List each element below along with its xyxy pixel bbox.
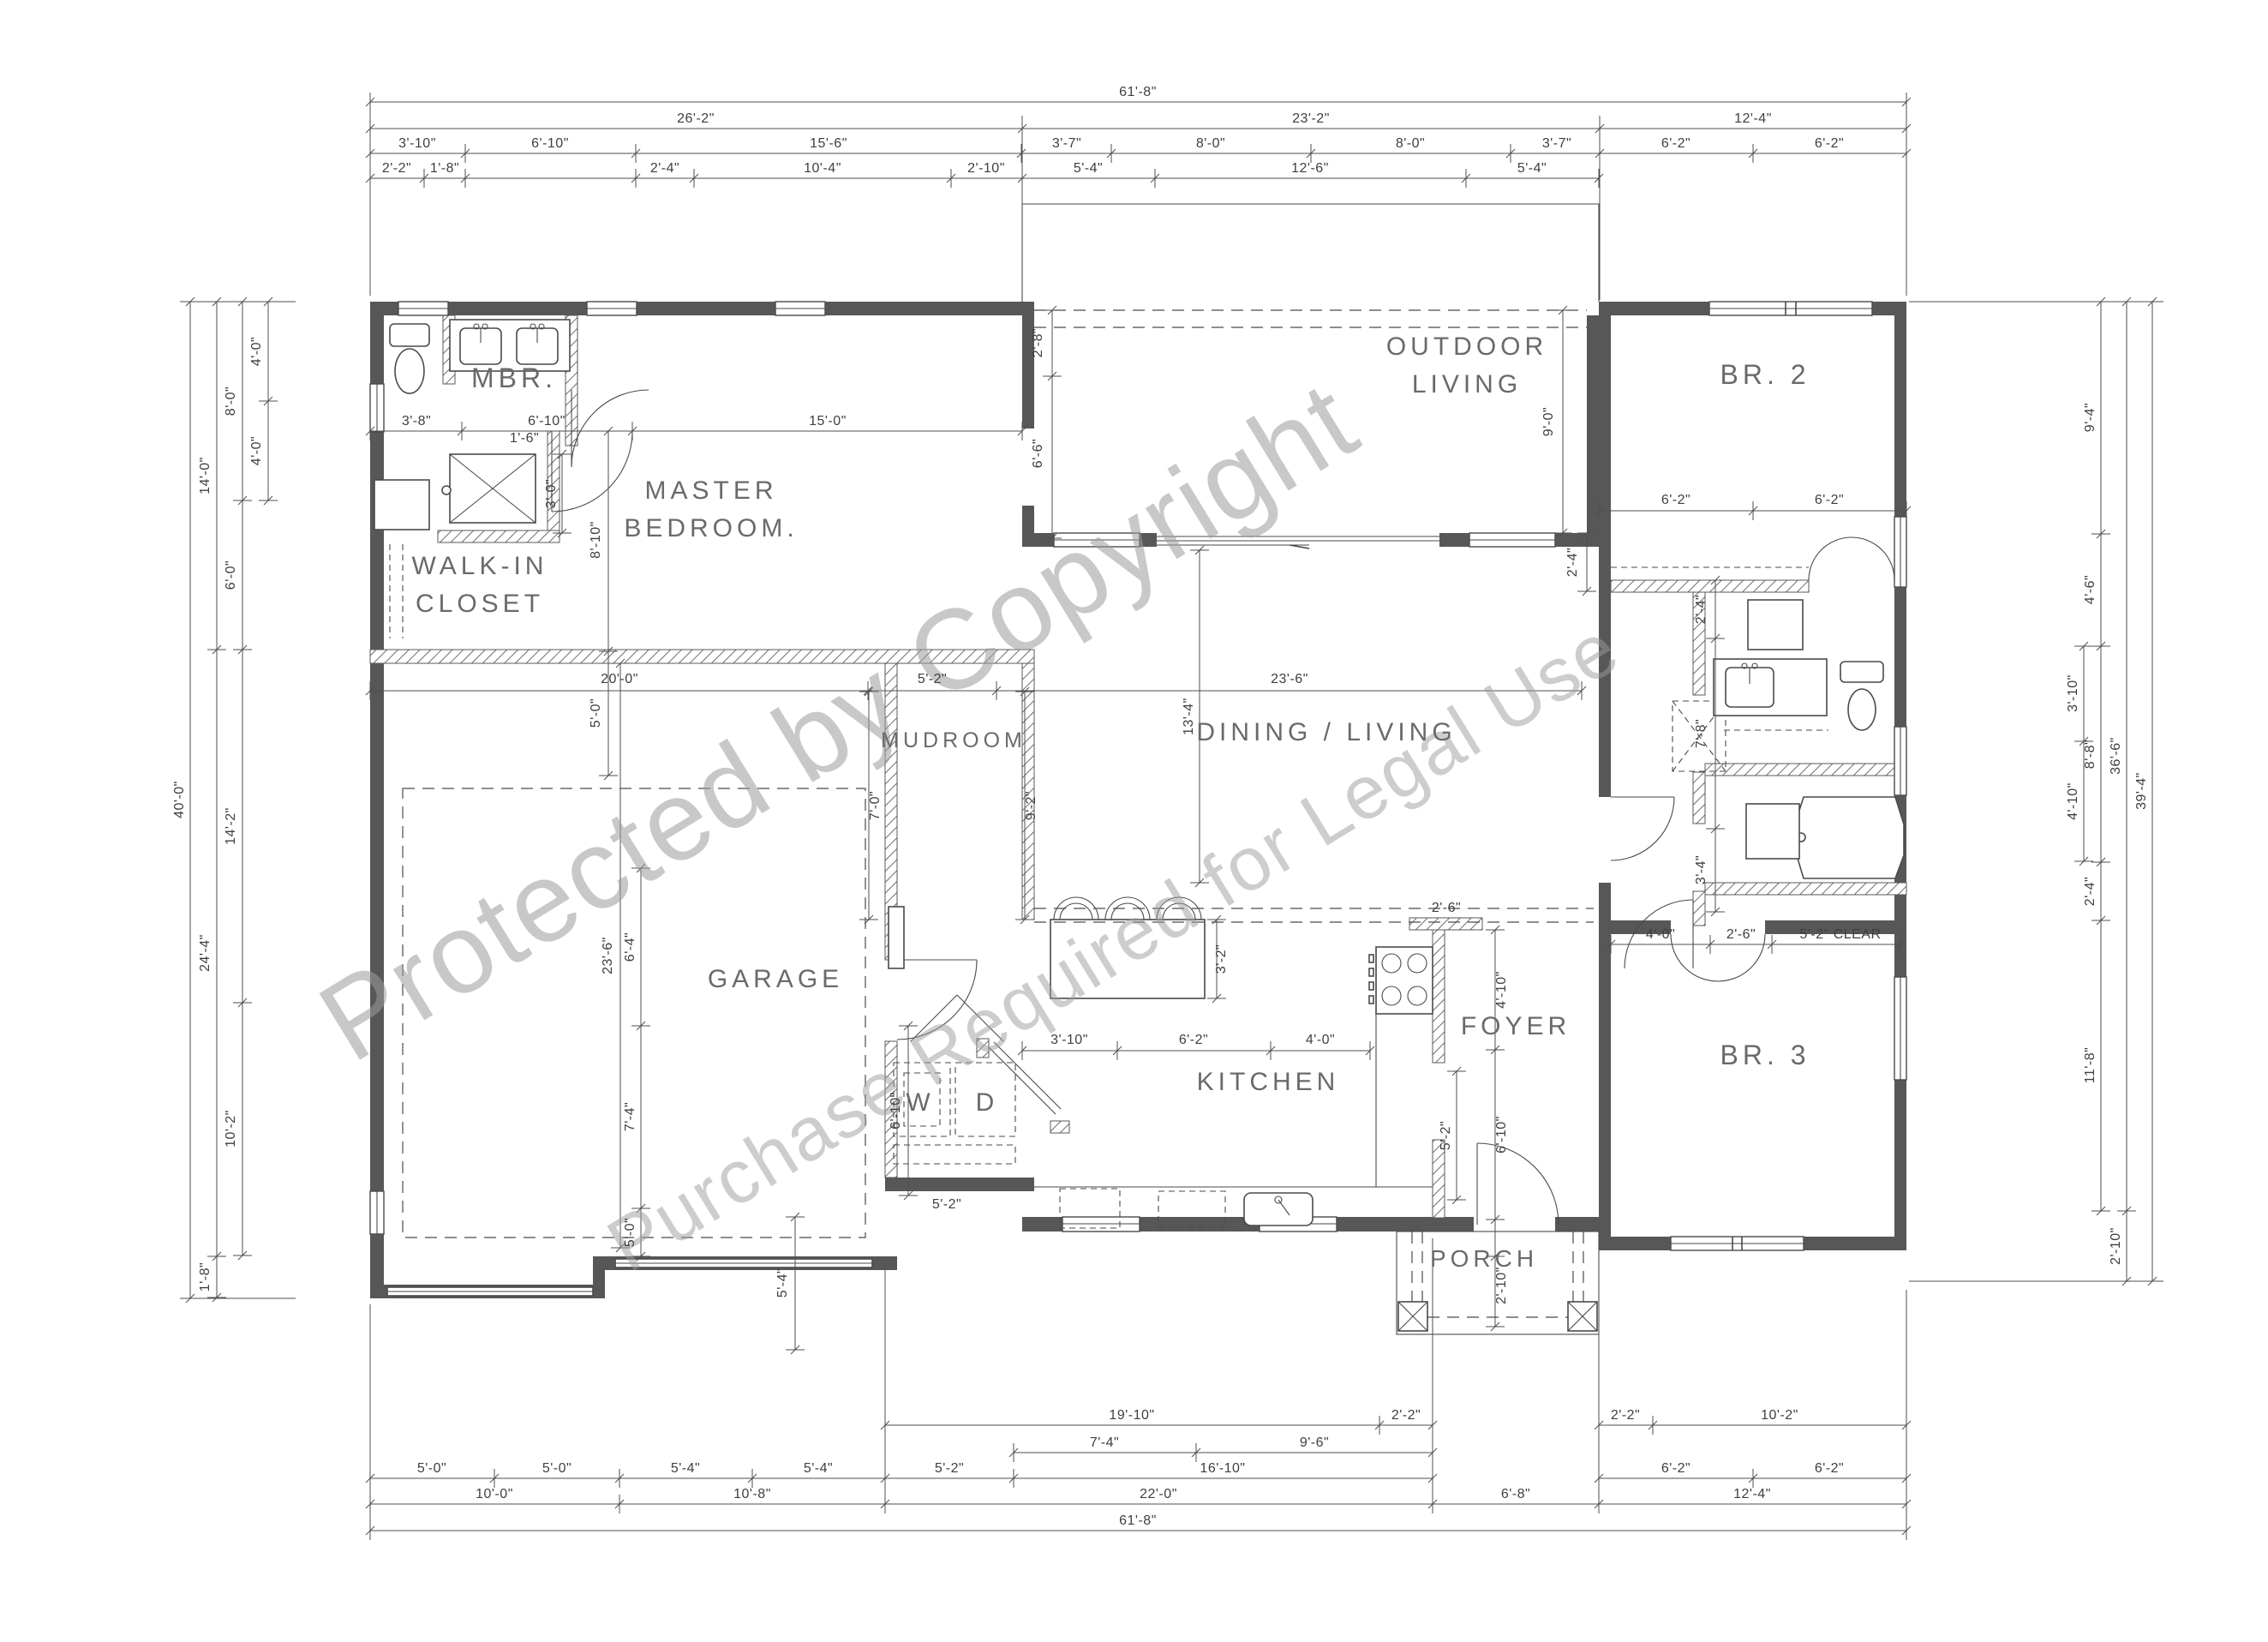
window: [1671, 1237, 1804, 1250]
cabinet: [374, 480, 429, 530]
dimension-label: 6'-2": [1661, 1461, 1691, 1476]
dimension-label: 6'-2": [1815, 1461, 1844, 1476]
room-label: BR. 3: [1720, 1040, 1810, 1070]
dimension-label: 15'-0": [809, 414, 847, 428]
vanity: [1714, 659, 1827, 716]
dimension-label: 2'-2": [1391, 1408, 1421, 1423]
room-label: DINING / LIVING: [1196, 718, 1456, 746]
dimension-label: 2'-2": [382, 161, 411, 176]
window: [398, 302, 448, 315]
dimension-label: 14'-0": [198, 457, 212, 494]
dimension-label: 6'-10": [531, 136, 569, 151]
toilet: [1840, 662, 1883, 730]
porch-column: [1568, 1302, 1597, 1331]
dimension-label: 61'-8": [1119, 1513, 1157, 1528]
window: [587, 302, 637, 315]
dimension-label: 2'-6": [1726, 927, 1756, 942]
dimension-label: 6'-4": [623, 932, 637, 962]
dimension-label: 6'-2": [1815, 493, 1844, 507]
room-label: PORCH: [1430, 1245, 1538, 1272]
dimension-label: 26'-2": [677, 111, 715, 126]
dimension-label: 4'-6": [2083, 575, 2097, 604]
window: [1062, 1217, 1140, 1231]
dimension-label: 6'-2": [1661, 136, 1691, 151]
dimension-label: 1'-8": [430, 161, 459, 176]
window: [1894, 727, 1906, 795]
dimension-label: 5'-0": [623, 1218, 637, 1247]
dimension-label: 2'-8": [1031, 328, 1045, 357]
dimension-label: 9'-6": [1300, 1435, 1329, 1450]
dimension-label: 6'-10": [889, 1092, 903, 1130]
dimension-label: 2'-10": [2109, 1227, 2123, 1265]
dimension-label: 5'-2": [1439, 1121, 1453, 1150]
dimension-label: 10'-2": [224, 1110, 238, 1148]
dimension-label: 2'-10": [1494, 1267, 1509, 1304]
dimension-label: 5'-4": [1517, 161, 1547, 176]
room-label: BEDROOM.: [624, 514, 798, 542]
dimension-label: 6'-2": [1661, 493, 1691, 507]
room-label: MASTER: [644, 476, 777, 505]
dimension-label: 12'-4": [1734, 111, 1772, 126]
dimension-label: 2'-10": [967, 161, 1005, 176]
dimension-label: 4'-0": [249, 337, 264, 366]
room-label: D: [976, 1088, 999, 1117]
dimension-label: 8'-0": [1396, 136, 1425, 151]
dimension-label: 3'-10": [398, 136, 436, 151]
window: [1894, 977, 1906, 1080]
room-label: CLOSET: [416, 590, 544, 618]
dimension-label: 7'-4": [623, 1102, 637, 1131]
dimension-label: 39'-4": [2134, 772, 2149, 810]
dimension-label: 5'-2": [932, 1197, 961, 1212]
dimension-label: 12'-4": [1733, 1487, 1771, 1501]
dimension-label: 3'-2": [1214, 944, 1229, 974]
dimension-label: 3'-7": [1052, 136, 1081, 151]
dimension-label: 8'-0": [224, 387, 238, 416]
dimension-label: 5'-4": [775, 1268, 790, 1297]
window: [775, 302, 825, 315]
dimension-label: 4'-10": [2066, 782, 2080, 820]
window: [370, 1191, 384, 1234]
dimension-label: 9'-0": [1541, 407, 1556, 436]
dimension-label: 4'-0": [1646, 927, 1675, 942]
dimension-label: 6'-8": [1501, 1487, 1530, 1501]
dimension-label: 8'-10": [589, 521, 603, 559]
room-label: MUDROOM: [881, 728, 1026, 752]
window: [1709, 302, 1872, 315]
dimension-label: 10'-4": [804, 161, 841, 176]
dimension-label: 11'-8": [2083, 1047, 2097, 1084]
dimension-label: 5'-4": [1074, 161, 1103, 176]
closet-rod: [390, 544, 403, 638]
dimension-label: 6'-6": [1031, 439, 1045, 468]
dimension-label: 5'-4": [804, 1461, 833, 1476]
dimension-label: 3'-4": [1694, 855, 1708, 884]
front-door: [1477, 1143, 1559, 1225]
dimension-label: 6'-10": [1494, 1116, 1509, 1154]
window: [1469, 533, 1555, 547]
linen-cabinet: [1746, 804, 1799, 859]
range: [1369, 947, 1433, 1014]
shower: [442, 454, 536, 523]
door-swing: [1611, 797, 1674, 860]
dimension-label: 23'-2": [1292, 111, 1330, 126]
patio-roof-outline: [1022, 204, 1599, 327]
dimension-label: 5'-2": [918, 672, 947, 686]
closet-double-door: [1809, 537, 1894, 580]
dimension-label: 2'-4": [650, 161, 679, 176]
dimension-label: 24'-4": [198, 934, 212, 972]
floorplan-sheet: Protected by CopyrightPurchase Required …: [0, 0, 2268, 1642]
mudroom-bench: [889, 907, 904, 968]
dimension-label: 12'-6": [1291, 161, 1329, 176]
dimension-label: 3'-10": [2066, 674, 2080, 712]
dimension-label: 9'-4": [2083, 403, 2097, 432]
dimension-label: 23'-6": [601, 937, 615, 974]
dimension-label: 61'-8": [1119, 85, 1157, 99]
dimension-label: 3'-7": [1542, 136, 1571, 151]
dimension-label: 6'-10": [528, 414, 566, 428]
dimension-label: 23'-6": [1271, 672, 1308, 686]
dimension-label: 20'-0": [601, 672, 638, 686]
room-label: FOYER: [1461, 1012, 1571, 1040]
room-label: W: [906, 1088, 934, 1117]
dimension-label: 4'-0": [1306, 1033, 1335, 1047]
room-label: BR. 2: [1720, 359, 1810, 390]
door-swing: [552, 431, 632, 512]
window: [370, 384, 384, 432]
dimension-label: 4'-10": [1494, 971, 1509, 1009]
dimension-label: 4'-0": [249, 436, 264, 465]
garage-door: [387, 1287, 593, 1296]
dimension-label: 1'-6": [510, 431, 539, 446]
dimension-label: 5'-0": [589, 698, 603, 728]
dimension-label: 5'-2" CLEAR: [1799, 927, 1881, 942]
dimension-label: 5'-2": [935, 1461, 964, 1476]
kitchen-sink: [1244, 1193, 1313, 1226]
bathtub: [1784, 797, 1904, 878]
porch-column: [1398, 1302, 1427, 1331]
dimension-label: 2'-4": [1565, 548, 1580, 577]
dimension-label: 2'-4": [1694, 595, 1708, 624]
dimension-label: 3'-10": [1050, 1033, 1088, 1047]
dimension-label: 6'-2": [1815, 136, 1844, 151]
room-label: MBR.: [471, 363, 557, 393]
dimension-label: 5'-0": [542, 1461, 571, 1476]
dimension-label: 6'-2": [1179, 1033, 1208, 1047]
room-label: WALK-IN: [412, 552, 548, 580]
dimension-label: 22'-0": [1140, 1487, 1177, 1501]
dimension-label: 15'-6": [810, 136, 847, 151]
dimension-label: 40'-0": [172, 781, 187, 818]
dimension-label: 10'-8": [733, 1487, 771, 1501]
linen-cabinet: [1748, 600, 1803, 650]
dimension-label: 10'-2": [1761, 1408, 1798, 1423]
dimension-label: 19'-10": [1109, 1408, 1154, 1423]
dimension-label: 5'-0": [417, 1461, 446, 1476]
fixtures-layer: [374, 204, 1904, 1334]
room-label: LIVING: [1412, 370, 1522, 399]
dimension-label: 7'-4": [1090, 1435, 1119, 1450]
window: [1894, 517, 1906, 587]
floor-plan-drawing: Protected by CopyrightPurchase Required …: [0, 0, 2268, 1642]
dimension-label: 16'-10": [1200, 1461, 1245, 1476]
dimension-label: 36'-6": [2109, 737, 2123, 775]
dimension-label: 2'-2": [1611, 1408, 1640, 1423]
toilet: [390, 324, 429, 393]
dimension-label: 2'-4": [2083, 877, 2097, 906]
dimension-label: 7'-8": [1694, 719, 1708, 748]
dimension-label: 2'-6": [1432, 901, 1461, 915]
dimension-label: 7'-0": [868, 791, 883, 820]
dimension-label: 3'-8": [402, 414, 431, 428]
room-label: GARAGE: [708, 965, 843, 993]
room-label: OUTDOOR: [1386, 333, 1547, 361]
dimension-label: 9'-2": [1024, 791, 1038, 820]
dimension-label: 13'-4": [1182, 698, 1196, 735]
dimension-label: 8'-0": [1196, 136, 1225, 151]
dimension-label: 8'-8": [2083, 740, 2097, 769]
dimension-label: 14'-2": [224, 807, 238, 845]
dimension-label: 6'-0": [224, 560, 238, 590]
dimension-label: 3'-0": [544, 479, 559, 508]
door-swing: [571, 390, 649, 467]
dimension-label: 1'-8": [198, 1262, 212, 1291]
room-label: KITCHEN: [1197, 1068, 1340, 1096]
dimension-label: 10'-0": [476, 1487, 513, 1501]
dimension-label: 5'-4": [671, 1461, 700, 1476]
